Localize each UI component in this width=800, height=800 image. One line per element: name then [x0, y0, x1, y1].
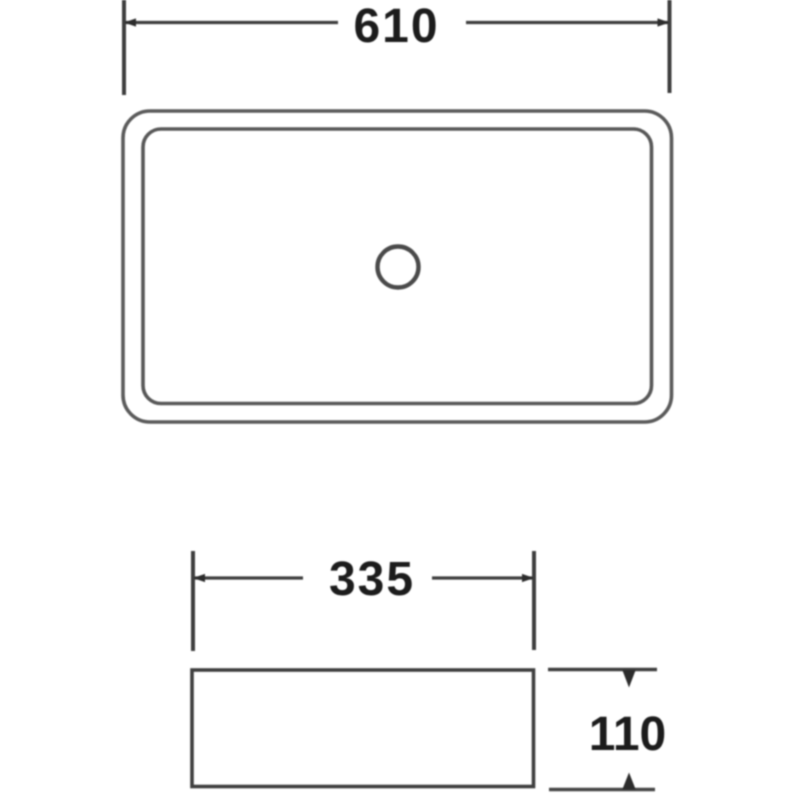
svg-text:335: 335	[329, 553, 415, 606]
svg-text:110: 110	[589, 708, 666, 761]
svg-text:610: 610	[353, 0, 439, 53]
